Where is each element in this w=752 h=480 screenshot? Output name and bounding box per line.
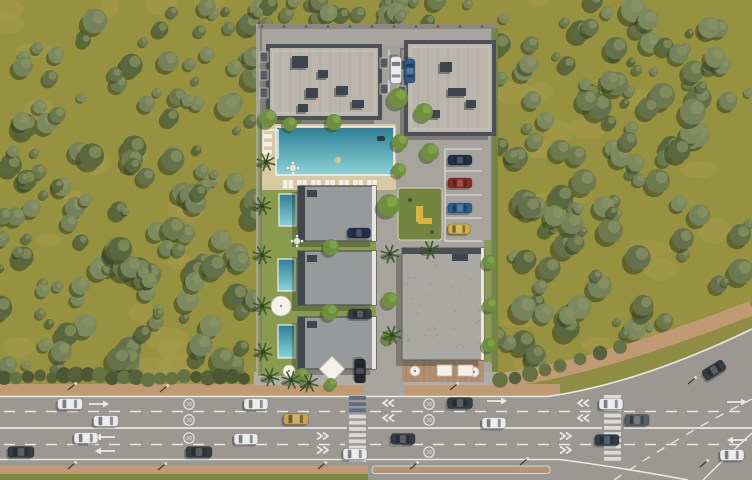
roof-box: [452, 254, 468, 261]
roof-speckle: [479, 320, 481, 322]
car-blue: [403, 57, 415, 83]
wall-post: [349, 25, 352, 28]
grass-south: [0, 474, 368, 480]
car-roof: [18, 448, 24, 456]
car-red: [446, 178, 472, 190]
car-rear-window: [364, 310, 367, 318]
wall-post: [283, 25, 286, 28]
car-windshield: [604, 400, 608, 409]
balcony: [380, 84, 388, 94]
wall-post: [481, 25, 484, 28]
roof-box: [448, 88, 466, 96]
roof-speckle: [470, 278, 472, 280]
car-rear-window: [260, 400, 263, 409]
roof-speckle: [409, 340, 411, 342]
wall-post: [371, 25, 374, 28]
roof-box: [318, 70, 328, 78]
roof-speckle: [458, 298, 460, 300]
car-windshield: [453, 179, 457, 187]
car-roof: [729, 451, 735, 459]
crosswalk-bar: [349, 427, 366, 431]
roof-speckle: [406, 340, 408, 342]
car-rear-window: [300, 415, 303, 424]
hedge-bush: [34, 370, 46, 382]
car-windshield: [191, 448, 195, 457]
car-roof: [457, 157, 463, 164]
car-windshield: [353, 310, 356, 318]
car-white: [480, 418, 506, 431]
car-roof: [243, 435, 249, 443]
svg-text:30: 30: [186, 436, 192, 442]
car-navy: [346, 228, 371, 240]
roof-speckle: [414, 277, 416, 279]
roof-speckle: [432, 261, 434, 263]
sidewalk-south: [0, 466, 368, 474]
car-roof: [491, 419, 497, 427]
hedge-bush: [522, 366, 538, 382]
hedge-bush: [141, 372, 156, 387]
roof-speckle: [437, 321, 439, 323]
gravel-median: [372, 466, 550, 474]
car-blue: [446, 203, 472, 215]
car-windshield: [396, 435, 400, 444]
car-windshield: [453, 399, 457, 408]
car-roof: [457, 399, 463, 407]
sun-lounger: [283, 180, 288, 189]
car-white: [389, 55, 402, 84]
roof-box: [292, 56, 308, 68]
roof-box: [307, 321, 317, 328]
svg-text:30: 30: [426, 418, 432, 424]
car-gold: [282, 414, 309, 427]
hedge-bush: [177, 369, 191, 383]
roof-edge: [402, 248, 484, 254]
roof-speckle: [438, 342, 440, 344]
car-windshield: [348, 450, 352, 459]
roof-box: [306, 88, 318, 98]
roof-speckle: [458, 292, 460, 294]
car-dark: [184, 447, 212, 460]
hedge-bush: [613, 340, 627, 354]
car-rear-window: [356, 375, 365, 378]
roof-box: [440, 62, 452, 72]
car-rear-window: [498, 419, 501, 428]
car-white: [718, 450, 744, 463]
car-roof: [392, 67, 400, 73]
car-rear-window: [250, 435, 253, 444]
roof-speckle: [479, 310, 481, 312]
hedge-bush: [10, 372, 22, 384]
sun-lounger: [263, 150, 272, 155]
car-white: [232, 434, 258, 447]
villa-terrace-strip: [372, 186, 376, 241]
car-rear-window: [25, 448, 28, 457]
car-roof: [352, 450, 358, 458]
roof-speckle: [460, 343, 462, 345]
apartment-block-a: [260, 46, 388, 124]
hedge-bush: [154, 372, 166, 384]
car-white: [72, 433, 98, 446]
hedge-bush: [190, 371, 202, 383]
hedge-bush: [225, 369, 240, 384]
hedge-bush: [46, 372, 57, 383]
car-roof: [67, 400, 73, 408]
car-rear-window: [203, 448, 206, 457]
car-windshield: [453, 204, 457, 212]
car-rear-window: [464, 204, 467, 212]
balcony: [260, 70, 268, 80]
villa-terrace-strip: [372, 317, 376, 369]
crosswalk-bar: [349, 421, 366, 425]
canopy: [458, 365, 473, 376]
hedge-bush: [553, 359, 566, 372]
sidewalk-north: [0, 384, 560, 396]
roof-speckle: [411, 298, 413, 300]
car-windshield: [453, 156, 457, 164]
play-equipment: [418, 218, 432, 224]
car-windshield: [63, 400, 67, 409]
apartment-block-b: [398, 42, 494, 140]
car-roof: [356, 230, 362, 237]
car-rear-window: [736, 451, 739, 460]
roof-speckle: [418, 304, 420, 306]
roof-speckle: [428, 329, 430, 331]
svg-text:30: 30: [426, 402, 432, 408]
sun-lounger: [263, 134, 272, 139]
car-roof: [356, 368, 364, 374]
car-windshield: [249, 400, 253, 409]
roof-speckle: [450, 286, 452, 288]
villa-2: [292, 251, 376, 311]
car-rear-window: [110, 417, 113, 426]
crosswalk-bar: [349, 433, 366, 437]
svg-text:30: 30: [186, 402, 192, 408]
car-rear-window: [359, 450, 362, 459]
car-windshield: [79, 434, 83, 443]
car-roof: [456, 226, 461, 233]
roof-box: [307, 255, 317, 262]
roof-speckle: [407, 284, 409, 286]
car-rear-window: [611, 436, 614, 445]
wall-post: [459, 25, 462, 28]
car-dark: [6, 447, 34, 460]
villa-roof-edge: [298, 186, 305, 241]
roof-speckle: [476, 322, 478, 324]
car-roof: [196, 448, 202, 456]
car-rear-window: [464, 399, 467, 408]
car-windshield: [452, 225, 455, 233]
wall-post: [415, 25, 418, 28]
roof-box: [466, 100, 476, 108]
roof-speckle: [432, 311, 434, 313]
car-roof: [457, 180, 463, 187]
svg-text:30: 30: [186, 418, 192, 424]
balcony: [380, 58, 388, 68]
car-roof: [608, 400, 614, 408]
car-roof: [400, 435, 406, 443]
crosswalk-bar: [604, 414, 621, 418]
roof-speckle: [453, 328, 455, 330]
car-white: [597, 399, 623, 412]
hedge-bush: [238, 373, 250, 385]
car-navy: [446, 155, 472, 167]
car-rear-window: [641, 416, 644, 425]
car-windshield: [725, 451, 729, 460]
hedge-bush: [105, 372, 118, 385]
car-roof: [604, 436, 610, 444]
wall-post: [437, 25, 440, 28]
roof-speckle: [455, 310, 457, 312]
car-windshield: [289, 415, 293, 424]
ground-patch: [680, 161, 718, 178]
hedge-bush: [22, 371, 35, 384]
crosswalk-bar: [349, 415, 366, 419]
car-rear-window: [406, 75, 414, 78]
play-post: [430, 230, 434, 234]
car-roof: [83, 434, 89, 442]
balcony: [260, 88, 268, 98]
crosswalk-bar: [604, 457, 621, 461]
roof-speckle: [407, 277, 409, 279]
car-roof: [103, 417, 109, 425]
roof-speckle: [456, 345, 458, 347]
roof-speckle: [478, 342, 480, 344]
car-windshield: [600, 436, 604, 445]
car-rear-window: [74, 400, 77, 409]
entrance-apron: [363, 372, 405, 397]
car-rear-window: [363, 229, 366, 237]
car-windshield: [406, 64, 414, 68]
car-windshield: [392, 62, 401, 66]
roof-box: [336, 86, 348, 95]
roof-speckle: [462, 346, 464, 348]
wall-post: [393, 25, 396, 28]
canopy: [437, 365, 452, 376]
hedge-bush: [574, 353, 587, 366]
car-white: [242, 399, 268, 412]
car-roof: [457, 205, 463, 212]
car-windshield: [630, 416, 634, 425]
car-gray: [623, 415, 649, 428]
car-rear-window: [463, 225, 466, 233]
car-white: [56, 399, 83, 412]
roof-box: [352, 100, 364, 108]
crosswalk-bar: [604, 426, 621, 430]
car-white: [92, 416, 119, 429]
car-black: [353, 357, 366, 383]
roof-speckle: [417, 313, 419, 315]
roof-speckle: [423, 352, 425, 354]
wall-post: [327, 25, 330, 28]
car-roof: [293, 415, 299, 423]
villa-roof-edge: [298, 317, 305, 369]
pool-float: [335, 157, 341, 163]
car-windshield: [487, 419, 491, 428]
hedge-bush: [166, 372, 179, 385]
car-dark: [593, 435, 619, 448]
crosswalk-bar: [604, 420, 621, 424]
hedge-bush: [593, 346, 607, 360]
patio-umbrella: [271, 296, 291, 316]
roof-box: [307, 190, 317, 197]
car-rear-window: [407, 435, 410, 444]
car-yellow: [446, 224, 470, 236]
roof-speckle: [430, 283, 432, 285]
hedge-bush: [539, 364, 552, 377]
balcony: [260, 52, 268, 62]
wall-post: [305, 25, 308, 28]
hedge-bush: [509, 372, 521, 384]
sun-lounger: [263, 142, 272, 147]
aerial-render-canvas: 303030303030: [0, 0, 752, 480]
crosswalk-bar: [349, 439, 366, 443]
crosswalk-bar: [349, 408, 366, 412]
car-dark: [446, 398, 473, 411]
roof-speckle: [431, 335, 433, 337]
car-roof: [407, 68, 414, 74]
roof-speckle: [425, 293, 427, 295]
building-roof: [402, 248, 484, 360]
roof-speckle: [436, 334, 438, 336]
roof-speckle: [435, 264, 437, 266]
car-rear-window: [615, 400, 618, 409]
villa-terrace-strip: [372, 251, 376, 305]
car-rear-window: [464, 179, 467, 187]
car-windshield: [352, 229, 355, 237]
play-post: [408, 198, 412, 202]
commercial-block: [396, 248, 484, 366]
car-roof: [253, 400, 259, 408]
roof-box: [298, 104, 308, 112]
car-windshield: [356, 364, 365, 368]
hedge-bush: [492, 372, 508, 388]
svg-text:30: 30: [426, 450, 432, 456]
car-windshield: [239, 435, 243, 444]
sun-lounger: [289, 180, 294, 189]
patio-umbrella: [410, 366, 420, 376]
car-dark: [389, 434, 415, 447]
car-roof: [357, 311, 363, 318]
crosswalk-bar: [349, 402, 366, 406]
ground-patch: [3, 337, 35, 357]
car-windshield: [13, 448, 17, 457]
hedge-bush: [92, 367, 108, 383]
car-dark: [347, 309, 372, 321]
roof-speckle: [425, 334, 427, 336]
car-rear-window: [90, 434, 93, 443]
pool-float: [377, 136, 385, 141]
roof-speckle: [436, 266, 438, 268]
crosswalk-bar: [604, 451, 621, 455]
car-roof: [634, 416, 640, 424]
car-rear-window: [392, 74, 401, 77]
aerial-site-render: 303030303030: [0, 0, 752, 480]
villa-roof-edge: [298, 251, 305, 305]
car-windshield: [99, 417, 103, 426]
roof-speckle: [435, 328, 437, 330]
ground-patch: [36, 235, 61, 246]
car-rear-window: [464, 156, 467, 164]
crosswalk-bar: [349, 396, 366, 400]
car-white: [341, 449, 367, 462]
